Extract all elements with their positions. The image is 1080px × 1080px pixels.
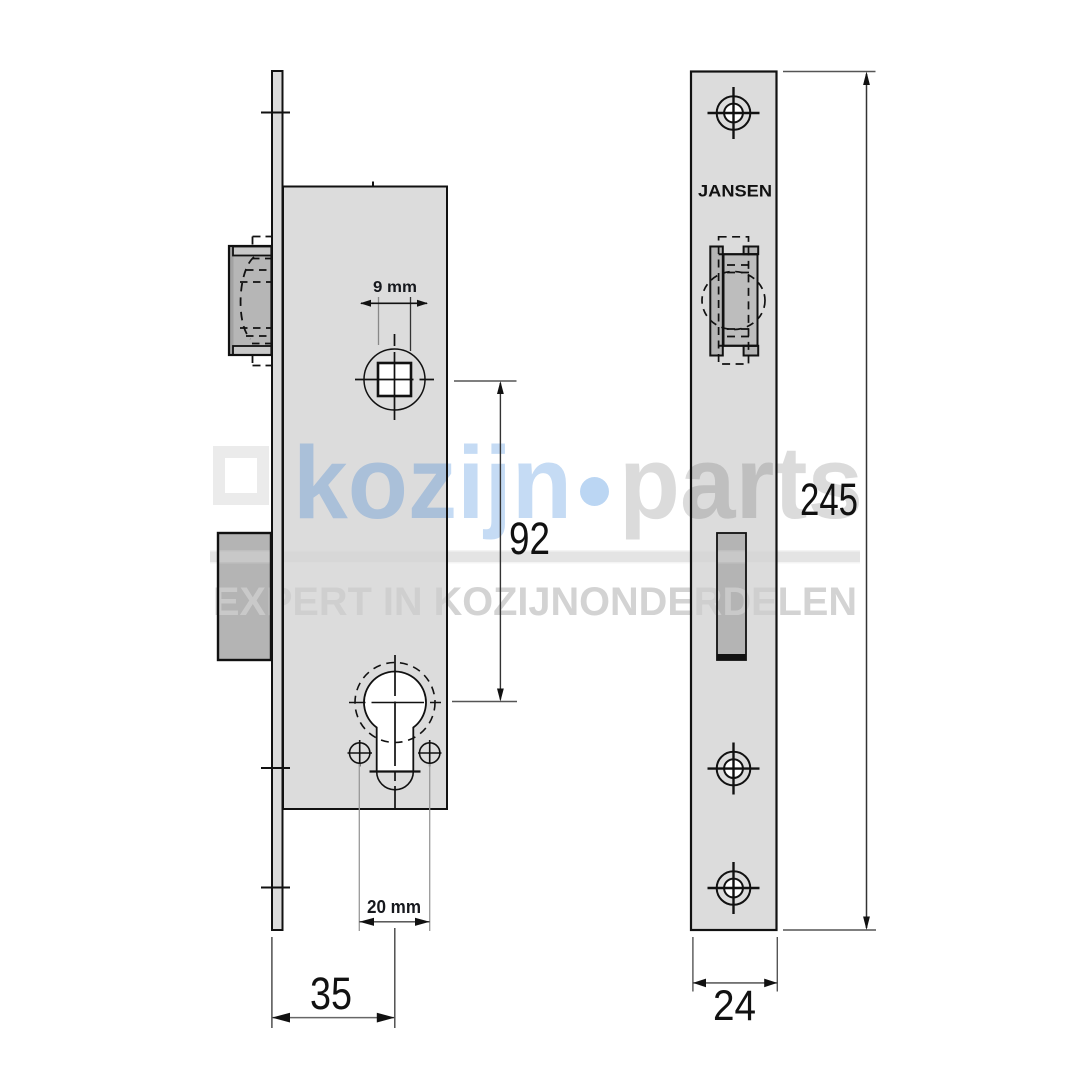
svg-text:JANSEN: JANSEN bbox=[698, 183, 772, 201]
svg-text:245: 245 bbox=[800, 474, 858, 525]
svg-text:EXPERT IN KOZIJNONDERDELEN: EXPERT IN KOZIJNONDERDELEN bbox=[213, 580, 857, 624]
svg-text:35: 35 bbox=[310, 968, 352, 1019]
svg-text:92: 92 bbox=[509, 513, 550, 564]
svg-text:9 mm: 9 mm bbox=[373, 279, 417, 296]
svg-text:20 mm: 20 mm bbox=[367, 897, 421, 917]
svg-text:24: 24 bbox=[713, 982, 756, 1030]
